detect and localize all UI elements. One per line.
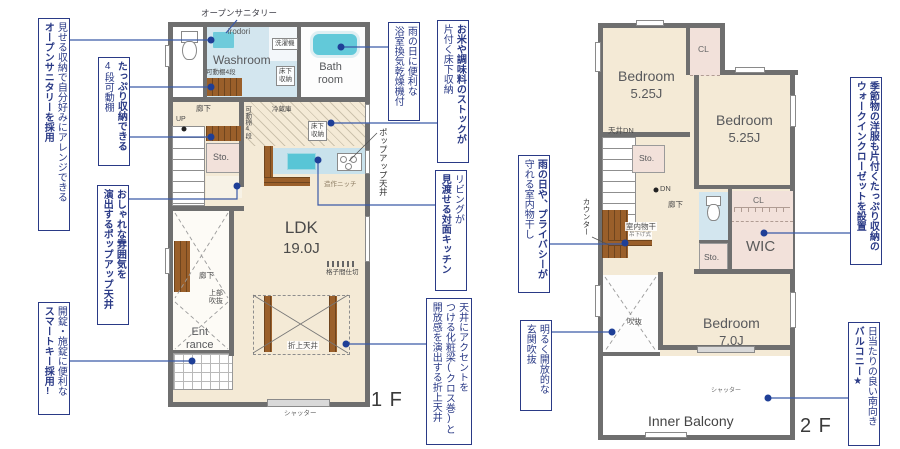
- bath-l1: Bath: [319, 61, 342, 73]
- callout-text: おしゃれな雰囲気を: [113, 189, 126, 321]
- label-up: UP: [176, 116, 186, 124]
- accent-beam: [329, 296, 337, 352]
- window: [735, 67, 765, 73]
- wall: [694, 185, 795, 189]
- label-counter: カウンター: [582, 198, 591, 236]
- wall: [229, 208, 234, 356]
- label-popup-ceiling: ポップアップ天井: [378, 128, 388, 196]
- lattice-partition-marks: [327, 261, 354, 267]
- shutter-bar-1f: [267, 399, 330, 407]
- window: [595, 285, 601, 317]
- toilet-icon: [182, 41, 197, 60]
- bedroom2-name: Bedroom: [716, 112, 773, 128]
- callout-text: 開放感を演出する折上天井: [429, 302, 442, 441]
- callout-south-balcony: 日当たりの良い南向き バルコニー★: [848, 322, 880, 446]
- label-shutter-1f: シャッター: [284, 410, 317, 418]
- label-underfloor-washroom: 床下 収納: [276, 66, 295, 86]
- window: [165, 45, 170, 67]
- room-label-bedroom1: Bedroom 5.25J: [618, 68, 675, 102]
- room-label-cl2: CL: [753, 195, 764, 205]
- callout-text: 日当たりの良い南向き: [864, 326, 877, 442]
- ldk-name: LDK: [285, 218, 318, 237]
- callout-smart-key: 開錠・施錠に便利な スマートキー採用!: [38, 302, 70, 415]
- room-label-bath: Bath room: [318, 61, 343, 87]
- wall: [658, 272, 663, 350]
- floor-label-1f: 1 F: [371, 388, 403, 412]
- room-label-bedroom2: Bedroom 5.25J: [716, 112, 773, 146]
- label-shelf4-washroom: 可動棚4段: [206, 69, 236, 77]
- label-underfloor-l2: 収納: [279, 76, 292, 83]
- callout-text: 開錠・施錠に便利な: [54, 306, 67, 411]
- stairs-1f: [172, 126, 205, 206]
- callout-underfloor-stock: お米や調味料のストックが 片付く床下収納: [437, 20, 469, 163]
- sanitary-title-main: オープンサニタリー: [201, 8, 277, 18]
- callout-text: 守れる室内物干し: [521, 159, 534, 289]
- label-corridor-top: 廊下: [196, 104, 211, 113]
- callout-text: 演出するポップアップ天井: [100, 189, 113, 321]
- room-label-sto2f-a: Sto.: [639, 153, 654, 163]
- callout-text: つける化粧梁(クロス巻)と: [442, 302, 455, 441]
- callout-text: 見渡せる対面キッチン: [438, 174, 451, 287]
- callout-entrance-void: 明るく開放的な 玄関吹抜: [520, 320, 552, 411]
- floorplan-page: Washroom 可動棚4段 洗濯機 床下 収納 Bath room 廊下 UP…: [0, 0, 900, 449]
- upper-void-l1: 上部: [209, 290, 223, 297]
- callout-text: バルコニー★: [851, 326, 864, 442]
- callout-text: スマートキー採用!: [41, 306, 54, 411]
- window: [165, 248, 170, 274]
- room-label-sto-1f: Sto.: [213, 152, 229, 163]
- bedroom3-size: 7.0J: [719, 333, 744, 348]
- ldk-size: 19.0J: [283, 240, 320, 257]
- wall: [694, 269, 795, 274]
- room-label-entrance: Ent rance: [186, 326, 214, 352]
- label-folded-ceiling: 折上天井: [287, 341, 319, 350]
- callout-text: 雨の日や、プライバシーが: [534, 159, 547, 289]
- callout-text: ウォークインクローゼットを設置: [853, 81, 866, 261]
- bathtub-icon: [310, 31, 360, 58]
- label-corridor-2f: 廊下: [668, 200, 683, 209]
- label-corridor-mid: 廊下: [199, 271, 214, 280]
- window: [645, 432, 687, 438]
- label-shelf4-hall: 可動棚4段: [243, 106, 251, 139]
- callout-text: 見せる収納で自分好みにアレンジできる: [54, 22, 67, 227]
- label-lattice-partition: 格子間仕切: [326, 269, 359, 277]
- callout-open-kitchen: リビングが 見渡せる対面キッチン: [435, 170, 467, 291]
- shelf-4step-hall: [206, 126, 241, 141]
- window: [790, 95, 796, 127]
- floor-label-2f: 2 F: [800, 414, 832, 438]
- clothes-rail-marks: [734, 207, 790, 212]
- callout-wic: 季節物の洋服も片付くたっぷり収納の ウォークインクローゼットを設置: [850, 77, 882, 265]
- window: [365, 150, 370, 174]
- label-drying-type: 吊下げ式: [628, 232, 652, 239]
- room-label-washroom: Washroom: [213, 53, 271, 67]
- callout-open-sanitary: 見せる収納で自分好みにアレンジできる オープンサニタリーを採用: [38, 18, 70, 231]
- bedroom3-name: Bedroom: [703, 315, 760, 331]
- sanitary-title: オープンサニタリー irodori: [196, 3, 282, 38]
- room-label-ldk: LDK 19.0J: [283, 218, 320, 257]
- counter-2f: [602, 210, 628, 258]
- room-label-sto2f-b: Sto.: [704, 252, 719, 262]
- room-label-wic: WIC: [746, 238, 775, 256]
- sanitary-title-sub: irodori: [228, 27, 250, 36]
- hall-wood-floor: [174, 241, 190, 292]
- callout-text: 明るく開放的な: [536, 324, 549, 407]
- callout-text: 片付く床下収納: [440, 24, 453, 159]
- label-indoor-drying: 室内物干: [625, 222, 657, 231]
- bedroom1-size: 5.25J: [631, 86, 663, 101]
- window: [636, 20, 664, 26]
- toilet-icon: [707, 204, 720, 221]
- void-2f: [603, 275, 660, 355]
- ent-l1: Ent: [192, 326, 209, 338]
- label-underfloor-l2: 収納: [311, 131, 324, 138]
- callout-popup-ceiling: おしゃれな雰囲気を 演出するポップアップ天井: [97, 185, 129, 325]
- callout-text: 季節物の洋服も片付くたっぷり収納の: [866, 81, 879, 261]
- callout-text: お米や調味料のストックが: [453, 24, 466, 159]
- wall: [603, 352, 660, 356]
- upper-void-l2: 吹抜: [209, 298, 223, 305]
- wall: [699, 240, 728, 243]
- stove-icon: [337, 153, 362, 171]
- label-upper-void: 上部 吹抜: [209, 290, 223, 307]
- shelf-4step-washroom: [206, 78, 242, 96]
- bedroom1-name: Bedroom: [618, 68, 675, 84]
- wall: [728, 189, 732, 272]
- label-ceiling-dn: 天井DN: [608, 126, 634, 135]
- hatch-area: [206, 176, 242, 198]
- callout-text: 天井にアクセントを: [455, 302, 468, 441]
- drying-bar: [608, 240, 652, 246]
- bath-l2: room: [318, 74, 343, 86]
- label-niche: 造作ニッチ: [324, 181, 357, 189]
- kitchen-ceiling-hatch: [246, 102, 365, 146]
- window: [790, 292, 796, 328]
- ent-l2: rance: [186, 339, 214, 351]
- kitchen-sink-icon: [287, 153, 316, 170]
- callout-text: 浴室換気乾燥機付: [391, 26, 404, 117]
- callout-indoor-drying: 雨の日や、プライバシーが 守れる室内物干し: [518, 155, 550, 293]
- plan2f-notch: [724, 21, 798, 70]
- room-label-bedroom3: Bedroom 7.0J: [703, 315, 760, 349]
- accent-beam: [264, 296, 272, 352]
- label-fridge: 冷蔵庫: [272, 106, 292, 114]
- callout-text: たっぷり収納できる: [114, 61, 127, 162]
- callout-text: 雨の日に便利な: [404, 26, 417, 117]
- wall: [720, 23, 725, 75]
- room-label-inner-balcony: Inner Balcony: [648, 413, 734, 430]
- callout-text: 玄関吹抜: [523, 324, 536, 407]
- label-underfloor-l1: 床下: [279, 68, 292, 75]
- label-dn: DN: [660, 184, 671, 193]
- label-shutter-2f: シャッター: [710, 388, 742, 395]
- callout-text: リビングが: [451, 174, 464, 287]
- label-void: 吹抜: [626, 317, 643, 326]
- label-underfloor-l1: 床下: [311, 123, 324, 130]
- wall: [694, 75, 699, 188]
- wall: [168, 97, 370, 102]
- callout-text: 4段可動棚: [101, 61, 114, 162]
- label-laundry-machine: 洗濯機: [272, 38, 298, 50]
- window: [365, 104, 370, 124]
- bedroom2-size: 5.25J: [729, 130, 761, 145]
- room-label-cl1: CL: [698, 44, 709, 54]
- kitchen-counter-wood-front: [264, 177, 310, 186]
- callout-bath-dryer: 雨の日に便利な 浴室換気乾燥機付: [388, 22, 420, 121]
- callout-shelf-storage: たっぷり収納できる 4段可動棚: [98, 57, 130, 166]
- label-underfloor-kitchen: 床下 収納: [308, 121, 327, 141]
- wall: [297, 27, 301, 99]
- callout-accent-beam: 天井にアクセントを つける化粧梁(クロス巻)と 開放感を演出する折上天井: [426, 298, 472, 445]
- entrance-porch: [173, 353, 233, 390]
- callout-text: オープンサニタリーを採用: [41, 22, 54, 227]
- window: [595, 42, 601, 72]
- wall: [686, 27, 690, 75]
- window: [365, 216, 370, 262]
